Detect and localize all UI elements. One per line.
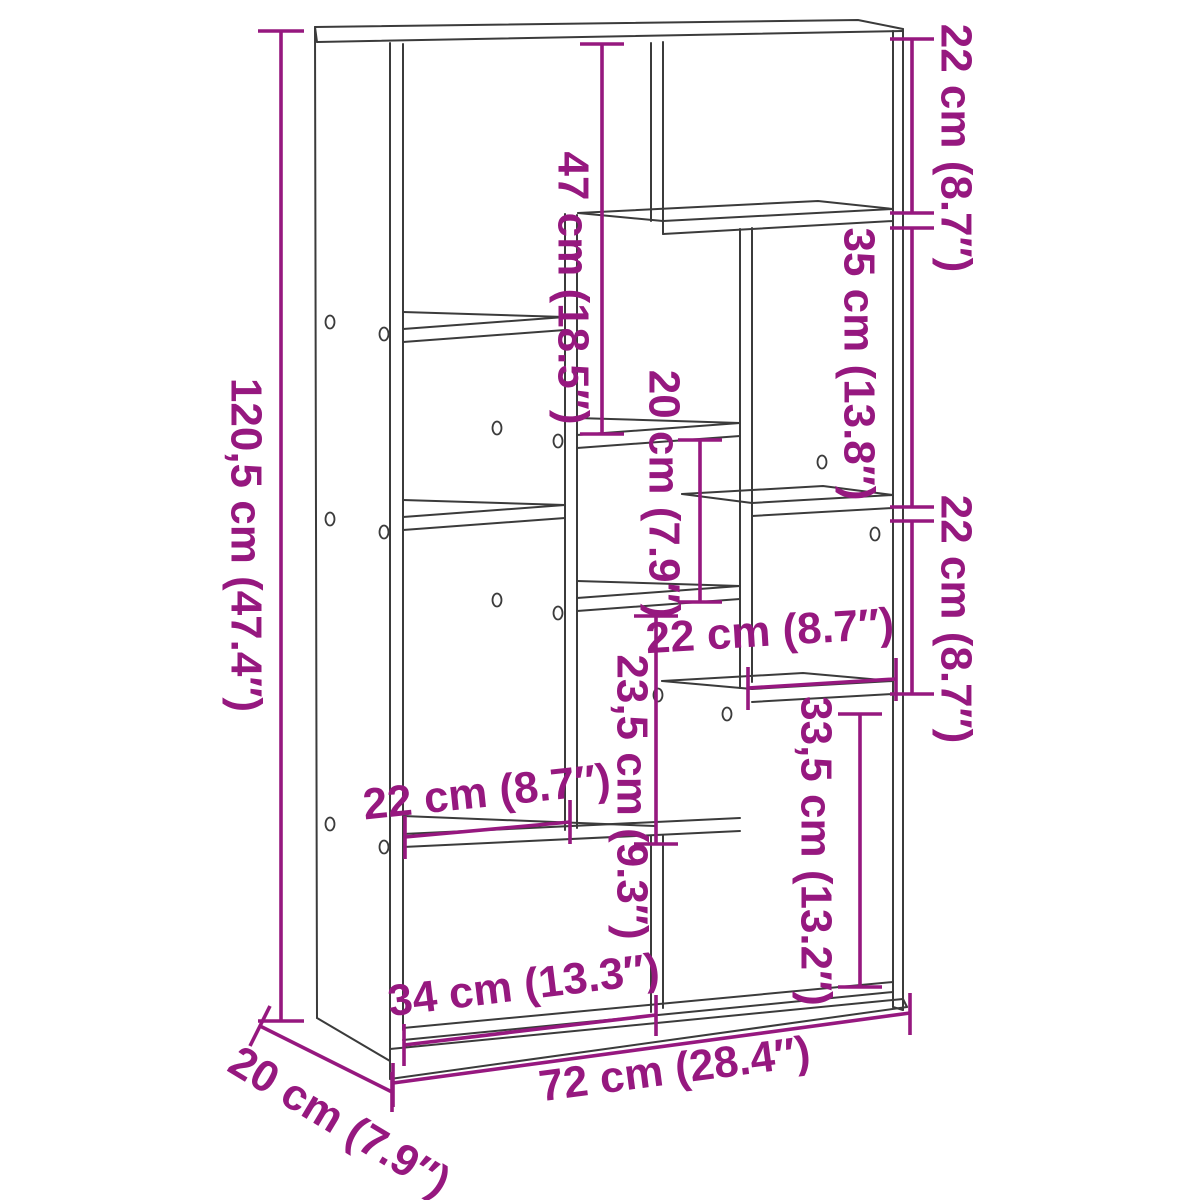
bookcase-dimension-diagram: 120,5 cm (47.4″) 20 cm (7.9″) 72 cm (28.… bbox=[0, 0, 1200, 1200]
shelf6-bottom-edge bbox=[752, 508, 893, 516]
top-board-front-edge bbox=[317, 31, 903, 42]
left-width-label: 22 cm (8.7″) bbox=[361, 755, 613, 830]
dimension-right-upper-height: 35 cm (13.8″) bbox=[834, 227, 934, 507]
peg-hole bbox=[818, 456, 827, 469]
peg-hole bbox=[326, 818, 335, 831]
shelf1-top-edge bbox=[663, 209, 893, 221]
left-panel-outer-edge bbox=[315, 27, 317, 1018]
dimension-middle-cubby-height: 20 cm (7.9″) bbox=[639, 370, 722, 619]
shelf2-bottom-edge bbox=[403, 330, 565, 342]
shelf6-top-face-left-edge bbox=[682, 494, 752, 503]
left-panel-bottom-edge bbox=[317, 1018, 390, 1061]
right-middle-height-label: 22 cm (8.7″) bbox=[931, 495, 980, 744]
depth-label: 20 cm (7.9″) bbox=[220, 1037, 458, 1200]
dimension-line bbox=[405, 822, 570, 837]
peg-hole bbox=[380, 328, 389, 341]
peg-hole bbox=[380, 526, 389, 539]
peg-hole bbox=[326, 316, 335, 329]
top-right-height-label: 22 cm (8.7″) bbox=[931, 24, 980, 273]
bottom-right-height-label: 33,5 cm (13.2″) bbox=[791, 696, 840, 1006]
overall-height-label: 120,5 cm (47.4″) bbox=[221, 378, 270, 712]
top-middle-height-label: 47 cm (18.5″) bbox=[548, 151, 597, 424]
peg-hole bbox=[554, 435, 563, 448]
right-upper-height-label: 35 cm (13.8″) bbox=[834, 227, 883, 500]
shelf3-bottom-edge bbox=[403, 518, 565, 530]
dimension-bottom-right-height: 33,5 cm (13.2″) bbox=[791, 696, 882, 1006]
shelf3-top-edge bbox=[403, 505, 565, 517]
peg-hole bbox=[493, 422, 502, 435]
peg-hole bbox=[871, 528, 880, 541]
dimension-annotations: 120,5 cm (47.4″) 20 cm (7.9″) 72 cm (28.… bbox=[220, 24, 980, 1200]
middle-lower-height-label: 23,5 cm (9.3″) bbox=[607, 654, 656, 939]
peg-hole bbox=[326, 513, 335, 526]
top-board-back-edge bbox=[315, 20, 903, 29]
shelf7-top-face-left-edge bbox=[662, 681, 752, 689]
bottom-left-width-label: 34 cm (13.3″) bbox=[385, 944, 662, 1026]
peg-hole bbox=[380, 841, 389, 854]
peg-hole bbox=[723, 708, 732, 721]
dimension-line bbox=[748, 679, 896, 688]
peg-hole bbox=[493, 594, 502, 607]
dimension-overall-height: 120,5 cm (47.4″) bbox=[221, 31, 304, 1021]
shelf2-top-face bbox=[403, 312, 565, 317]
peg-hole bbox=[554, 607, 563, 620]
dimension-top-middle-height: 47 cm (18.5″) bbox=[548, 44, 624, 434]
dimension-depth: 20 cm (7.9″) bbox=[220, 1006, 458, 1200]
dimension-middle-lower-height: 23,5 cm (9.3″) bbox=[607, 616, 678, 940]
shelf3-top-face bbox=[403, 500, 565, 505]
diagram-page: 120,5 cm (47.4″) 20 cm (7.9″) 72 cm (28.… bbox=[0, 0, 1200, 1200]
dimension-middle-width: 22 cm (8.7″) bbox=[644, 599, 896, 710]
shelf2-top-edge bbox=[403, 317, 565, 329]
middle-cubby-height-label: 20 cm (7.9″) bbox=[639, 370, 688, 619]
